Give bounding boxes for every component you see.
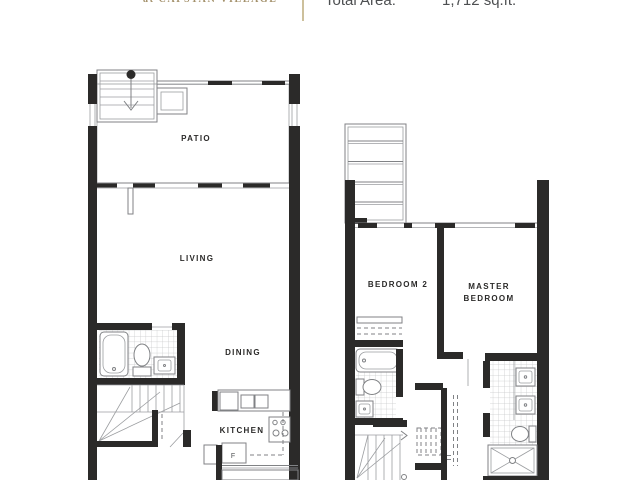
bathtub <box>100 332 128 376</box>
stairs-upper <box>355 420 441 480</box>
stair-newel-post <box>127 70 136 79</box>
sink-upper <box>356 401 373 417</box>
stair-direction-arrow-upper <box>401 431 407 440</box>
hall-walls <box>415 352 468 480</box>
stove <box>269 417 290 442</box>
fridge: F <box>222 443 246 463</box>
living-label: LIVING <box>180 254 214 263</box>
kitchen-label: KITCHEN <box>220 426 265 435</box>
kitchen: F <box>204 390 298 480</box>
sink <box>154 357 175 374</box>
ensuite-sink-2 <box>516 396 535 414</box>
sliding-door-leaf <box>128 188 133 214</box>
bedroom2-closet <box>357 317 402 334</box>
toilet <box>133 344 151 376</box>
kitchen-sink <box>241 395 268 408</box>
patio-door-wall <box>97 183 289 214</box>
closet-door <box>170 433 183 447</box>
bathroom-upper <box>348 340 403 425</box>
bathroom-main <box>97 323 185 385</box>
fridge-label: F <box>231 453 235 460</box>
main-floor-plan: PATIO LIVING DINING <box>88 70 300 480</box>
upper-floor-plan: BEDROOM 2 MASTER BEDROOM <box>345 124 549 480</box>
bedroom2-label: BEDROOM 2 <box>368 280 428 289</box>
toilet-upper <box>356 379 381 395</box>
floorplan-page: { "header": { "project_name": "at CAPSTA… <box>0 0 640 480</box>
shower <box>488 445 537 476</box>
floorplan-drawing: PATIO LIVING DINING <box>0 0 640 480</box>
dining-label: DINING <box>225 348 261 357</box>
walk-in-closet <box>447 395 458 466</box>
patio-label: PATIO <box>181 134 211 143</box>
ensuite-sink-1 <box>516 368 535 386</box>
kitchen-island <box>222 466 298 480</box>
patio-stairs <box>97 70 157 122</box>
ensuite-toilet <box>512 426 537 442</box>
master-bedroom-label-line1: MASTER <box>468 282 510 291</box>
master-bedroom-label-line2: BEDROOM <box>464 294 515 303</box>
bedroom-divider-wall <box>437 228 444 352</box>
entry-closet <box>204 445 217 464</box>
stairs-overhead-dashed <box>417 428 441 455</box>
planter-box <box>157 88 187 114</box>
bathtub-upper <box>356 349 400 372</box>
stairs-main <box>97 385 191 447</box>
